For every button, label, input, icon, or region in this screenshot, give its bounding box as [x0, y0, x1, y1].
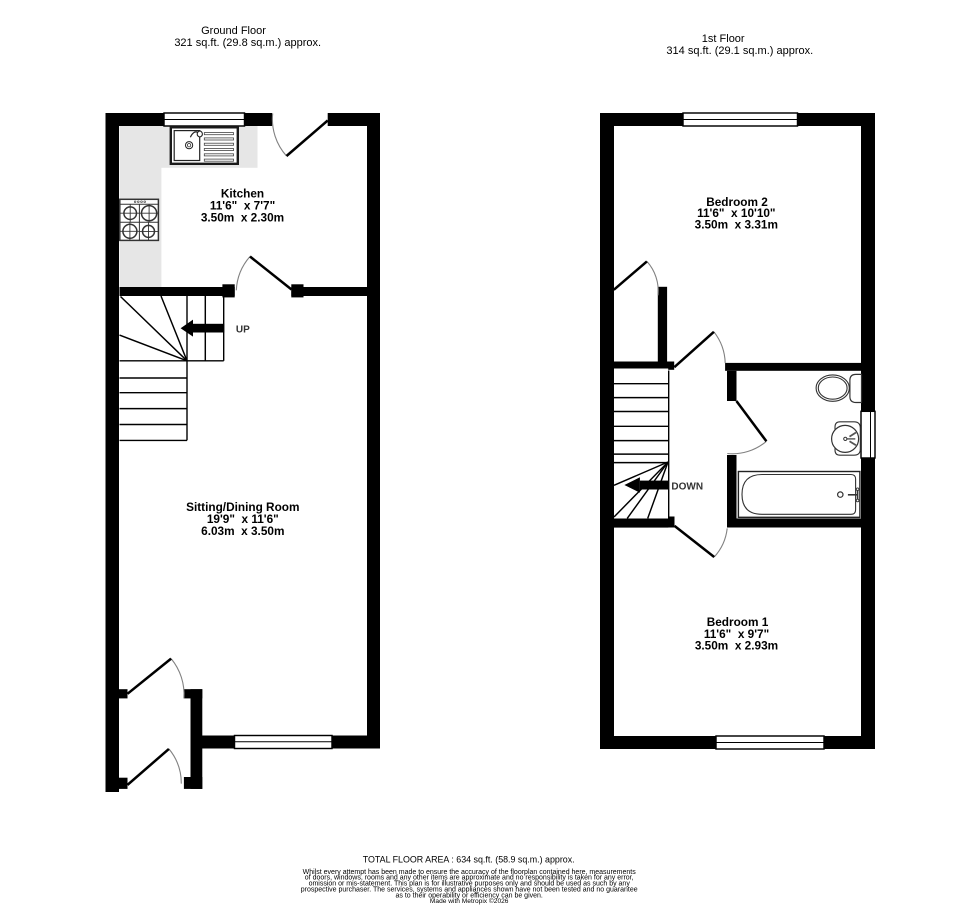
svg-text:3.50m x 2.93m: 3.50m x 2.93m — [695, 639, 778, 653]
svg-text:3.50m x 3.31m: 3.50m x 3.31m — [695, 217, 778, 231]
svg-text:TOTAL FLOOR AREA : 634 sq.ft.: TOTAL FLOOR AREA : 634 sq.ft. (58.9 sq.m… — [363, 855, 575, 865]
svg-text:DOWN: DOWN — [671, 482, 703, 493]
svg-text:6.03m x 3.50m: 6.03m x 3.50m — [201, 524, 284, 538]
svg-text:321 sq.ft. (29.8 sq.m.) approx: 321 sq.ft. (29.8 sq.m.) approx. — [174, 37, 321, 49]
svg-text:1st Floor: 1st Floor — [702, 33, 745, 45]
svg-text:Ground Floor: Ground Floor — [201, 25, 266, 37]
svg-text:3.50m x 2.30m: 3.50m x 2.30m — [201, 211, 284, 225]
svg-text:Made with Metropix ©2026: Made with Metropix ©2026 — [430, 897, 509, 905]
svg-text:UP: UP — [236, 325, 250, 336]
svg-text:314 sq.ft. (29.1 sq.m.) approx: 314 sq.ft. (29.1 sq.m.) approx. — [666, 45, 813, 57]
